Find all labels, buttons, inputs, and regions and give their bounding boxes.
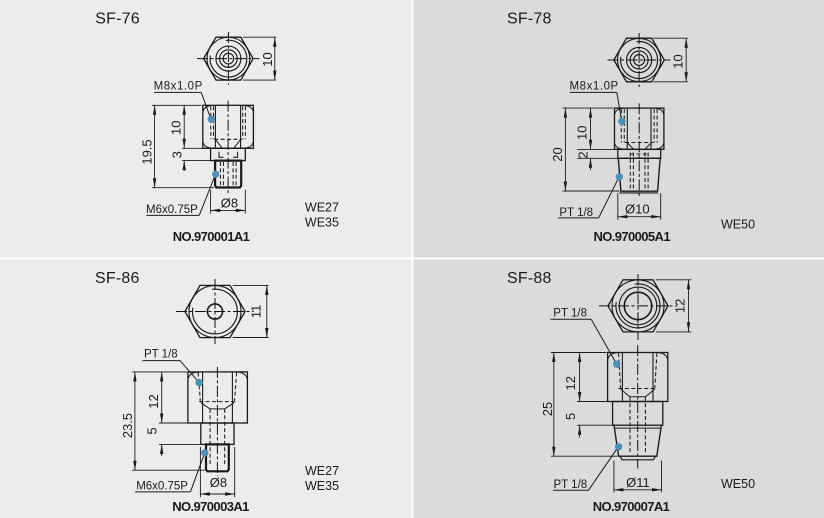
svg-text:NO.970005A1: NO.970005A1: [593, 229, 670, 244]
svg-text:M6x0.75P: M6x0.75P: [136, 481, 188, 493]
svg-text:PT 1/8: PT 1/8: [554, 479, 588, 491]
svg-text:12: 12: [146, 394, 161, 408]
svg-text:10: 10: [575, 125, 590, 139]
svg-text:12: 12: [563, 376, 578, 390]
svg-text:WE27: WE27: [305, 200, 339, 214]
svg-text:20: 20: [550, 147, 565, 161]
svg-text:19.5: 19.5: [140, 139, 155, 164]
svg-text:WE35: WE35: [305, 479, 339, 493]
svg-text:23.5: 23.5: [120, 413, 135, 438]
svg-text:12: 12: [672, 299, 687, 313]
svg-text:3: 3: [170, 151, 185, 158]
svg-text:NO.970001A1: NO.970001A1: [173, 229, 250, 244]
svg-text:11: 11: [249, 305, 264, 319]
svg-text:SF-88: SF-88: [507, 270, 552, 287]
svg-text:Ø8: Ø8: [221, 195, 238, 210]
svg-text:PT 1/8: PT 1/8: [553, 308, 587, 320]
svg-text:PT 1/8: PT 1/8: [559, 207, 593, 219]
svg-text:WE50: WE50: [721, 477, 755, 491]
svg-text:M6x0.75P: M6x0.75P: [146, 204, 198, 216]
svg-text:5: 5: [563, 413, 578, 420]
svg-text:SF-78: SF-78: [507, 11, 552, 28]
svg-text:5: 5: [144, 427, 159, 434]
svg-text:10: 10: [671, 54, 686, 68]
svg-text:Ø11: Ø11: [626, 475, 650, 490]
svg-text:WE50: WE50: [721, 218, 755, 232]
svg-text:25: 25: [540, 402, 555, 416]
svg-text:NO.970007A1: NO.970007A1: [593, 499, 670, 514]
svg-text:WE27: WE27: [305, 464, 339, 478]
svg-text:10: 10: [260, 52, 275, 66]
svg-text:WE35: WE35: [305, 216, 339, 230]
svg-text:NO.970003A1: NO.970003A1: [172, 499, 249, 514]
svg-text:SF-86: SF-86: [95, 270, 140, 287]
svg-text:SF-76: SF-76: [95, 11, 140, 28]
svg-text:10: 10: [169, 121, 184, 135]
svg-text:M8x1.0P: M8x1.0P: [570, 81, 619, 93]
svg-text:PT 1/8: PT 1/8: [144, 349, 178, 361]
svg-text:M8x1.0P: M8x1.0P: [154, 81, 203, 93]
svg-text:2: 2: [576, 151, 591, 158]
svg-text:Ø8: Ø8: [210, 475, 227, 490]
svg-text:Ø10: Ø10: [625, 202, 650, 217]
